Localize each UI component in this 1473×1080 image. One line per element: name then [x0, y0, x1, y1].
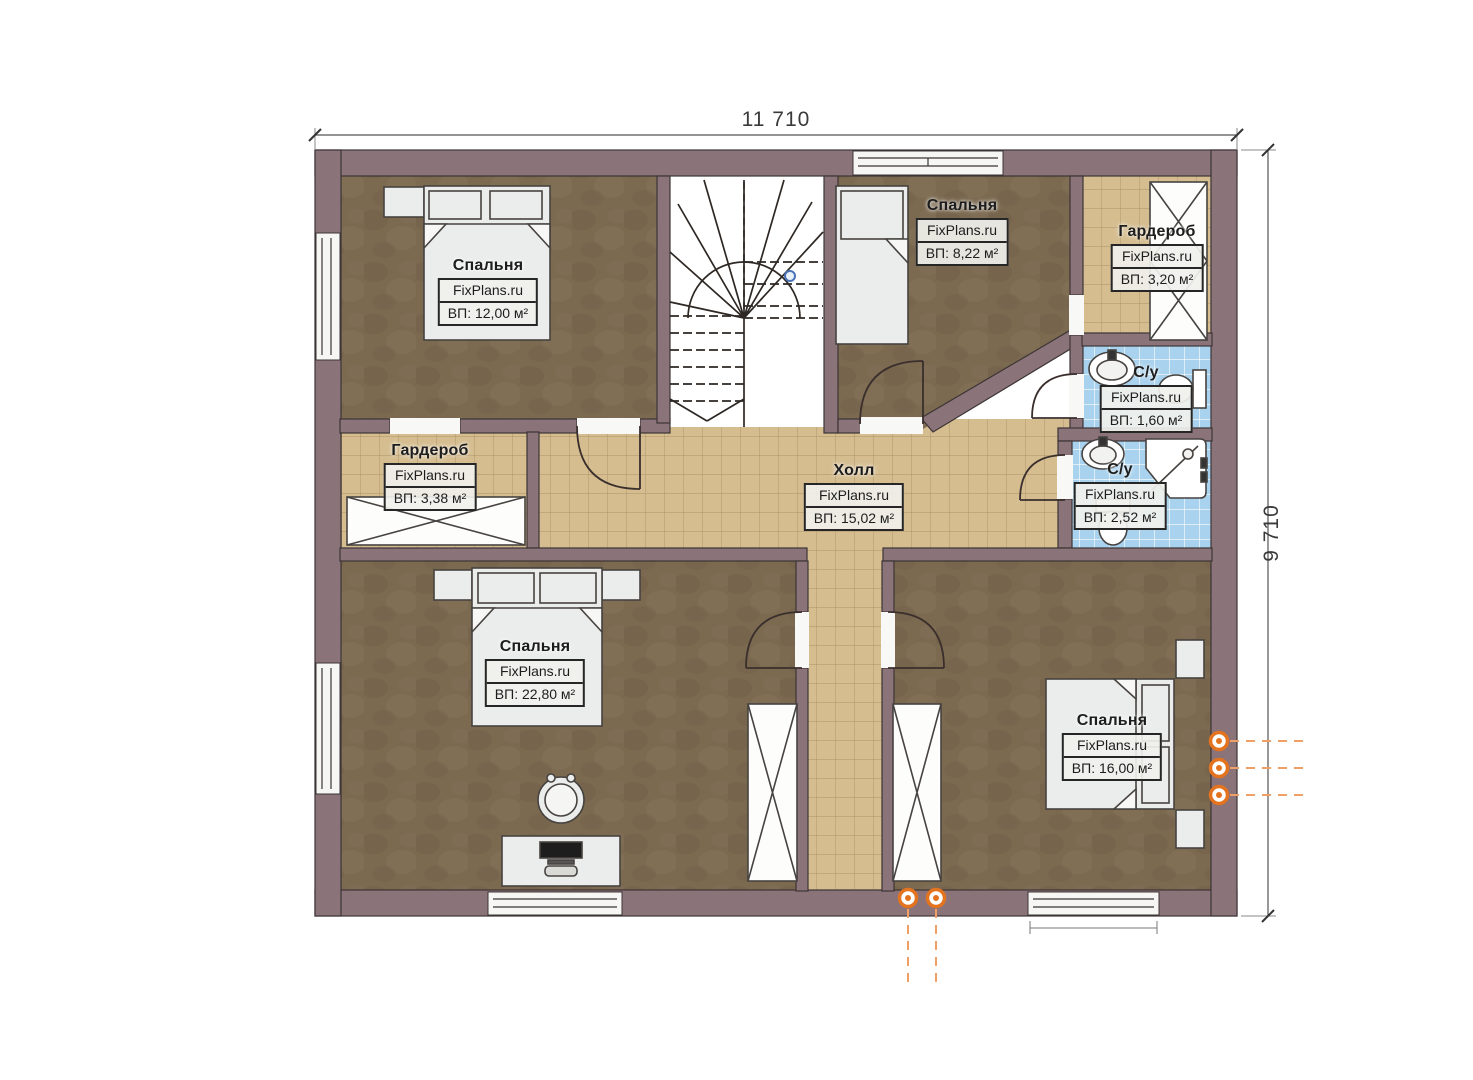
room-label-hall: Холл FixPlans.ru ВП: 15,02 м²: [804, 462, 904, 531]
room-brand: FixPlans.ru: [1102, 387, 1191, 408]
room-info-box: FixPlans.ru ВП: 15,02 м²: [804, 483, 904, 531]
room-brand: FixPlans.ru: [918, 220, 1007, 241]
room-name: Спальня: [485, 638, 585, 656]
room-area: ВП: 3,38 м²: [386, 486, 475, 509]
floor-corridor-tiles: [807, 548, 883, 890]
wall-exterior-top: [315, 150, 1237, 176]
room-brand: FixPlans.ru: [1113, 246, 1202, 267]
room-info-box: FixPlans.ru ВП: 22,80 м²: [485, 659, 585, 707]
nightstand-icon: [1176, 810, 1204, 848]
wardrobe-unit-br-icon: [893, 704, 941, 881]
room-info-box: FixPlans.ru ВП: 3,38 м²: [384, 463, 477, 511]
room-name: Холл: [804, 462, 904, 480]
towel-rail-icon: [1201, 472, 1207, 482]
room-label-bedroom-top-left: Спальня FixPlans.ru ВП: 12,00 м²: [438, 257, 538, 326]
room-label-bedroom-top-middle: Спальня FixPlans.ru ВП: 8,22 м²: [916, 197, 1009, 266]
bed-single-icon: [836, 186, 908, 344]
nightstand-icon: [602, 570, 640, 600]
floor-plan-drawing: [0, 0, 1473, 1080]
room-info-box: FixPlans.ru ВП: 12,00 м²: [438, 278, 538, 326]
room-label-wardrobe-top-right: Гардероб FixPlans.ru ВП: 3,20 м²: [1111, 223, 1204, 292]
room-area: ВП: 16,00 м²: [1064, 756, 1160, 779]
dimension-height-label: 9 710: [1260, 504, 1284, 562]
room-name: С/у: [1100, 364, 1193, 382]
room-brand: FixPlans.ru: [487, 661, 583, 682]
room-area: ВП: 1,60 м²: [1102, 408, 1191, 431]
room-brand: FixPlans.ru: [1064, 735, 1160, 756]
room-area: ВП: 15,02 м²: [806, 506, 902, 529]
nightstand-icon: [384, 187, 424, 217]
room-brand: FixPlans.ru: [386, 465, 475, 486]
room-name: Гардероб: [1111, 223, 1204, 241]
dimension-width-label: 11 710: [742, 108, 811, 132]
room-info-box: FixPlans.ru ВП: 2,52 м²: [1074, 482, 1167, 530]
desk-icon: [502, 836, 620, 886]
room-label-bathroom-small: С/у FixPlans.ru ВП: 1,60 м²: [1100, 364, 1193, 433]
room-info-box: FixPlans.ru ВП: 16,00 м²: [1062, 733, 1162, 781]
room-info-box: FixPlans.ru ВП: 3,20 м²: [1111, 244, 1204, 292]
room-brand: FixPlans.ru: [1076, 484, 1165, 505]
stair-reference-point: [785, 271, 795, 281]
window-bottom-right: [1028, 892, 1159, 934]
floor-stairwell: [668, 176, 826, 427]
wall-hall-bottom-left: [340, 548, 807, 561]
floor-plan-page: Спальня FixPlans.ru ВП: 12,00 м² Спальня…: [0, 0, 1473, 1080]
wardrobe-unit-bl-icon: [748, 704, 797, 881]
room-label-wardrobe-left: Гардероб FixPlans.ru ВП: 3,38 м²: [384, 442, 477, 511]
room-area: ВП: 3,20 м²: [1113, 267, 1202, 290]
room-area: ВП: 8,22 м²: [918, 241, 1007, 264]
room-area: ВП: 22,80 м²: [487, 682, 583, 705]
room-label-bathroom-large: С/у FixPlans.ru ВП: 2,52 м²: [1074, 461, 1167, 530]
room-area: ВП: 2,52 м²: [1076, 505, 1165, 528]
room-label-bedroom-bottom-left: Спальня FixPlans.ru ВП: 22,80 м²: [485, 638, 585, 707]
wall-hall-bottom-right: [883, 548, 1212, 561]
room-brand: FixPlans.ru: [440, 280, 536, 301]
opening-wardrobe-left: [390, 418, 460, 434]
wall-stair-left: [657, 176, 670, 423]
room-name: Спальня: [438, 257, 538, 275]
towel-rail-icon: [1201, 458, 1207, 468]
nightstand-icon: [1176, 640, 1204, 678]
opening-wardrobe-tr: [1069, 295, 1084, 335]
wall-wardrobe-left-right: [527, 432, 539, 548]
window-bottom-left: [488, 892, 622, 915]
room-label-bedroom-bottom-right: Спальня FixPlans.ru ВП: 16,00 м²: [1062, 712, 1162, 781]
window-left-top: [316, 233, 340, 360]
room-name: С/у: [1074, 461, 1167, 479]
room-name: Спальня: [916, 197, 1009, 215]
nightstand-icon: [434, 570, 472, 600]
room-name: Гардероб: [384, 442, 477, 460]
room-name: Спальня: [1062, 712, 1162, 730]
room-area: ВП: 12,00 м²: [440, 301, 536, 324]
room-info-box: FixPlans.ru ВП: 1,60 м²: [1100, 385, 1193, 433]
window-left-bottom: [316, 663, 340, 794]
window-top: [853, 151, 1003, 175]
room-brand: FixPlans.ru: [806, 485, 902, 506]
room-info-box: FixPlans.ru ВП: 8,22 м²: [916, 218, 1009, 266]
